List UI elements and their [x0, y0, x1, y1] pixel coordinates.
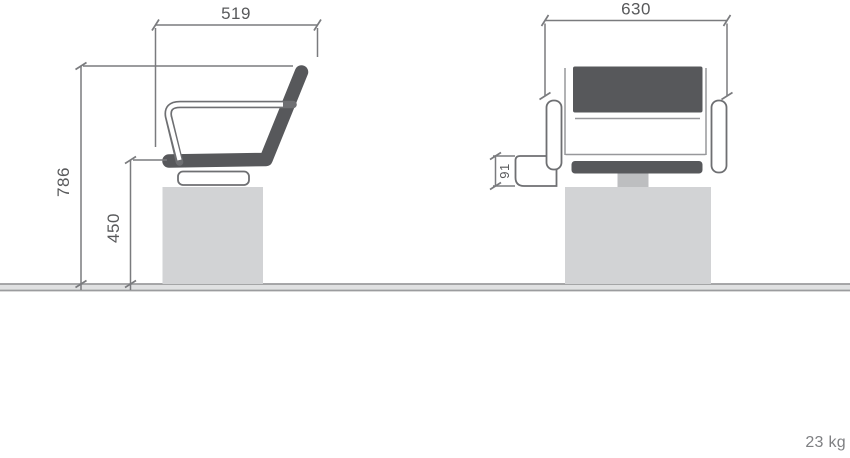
front-seat	[572, 161, 703, 174]
dim-91-label: 91	[497, 163, 512, 178]
dim-450: 450	[104, 157, 167, 291]
side-view	[163, 72, 302, 284]
side-base	[163, 187, 264, 284]
front-armrest-left	[547, 101, 562, 170]
side-seat-shell	[169, 72, 302, 161]
front-base	[565, 187, 711, 284]
front-armrest-right	[712, 101, 727, 173]
weight-label: 23 kg	[805, 434, 846, 451]
front-view	[516, 67, 727, 285]
dim-91: 91	[490, 153, 515, 190]
dim-450-label: 450	[104, 213, 123, 243]
front-backrest	[573, 67, 703, 113]
dim-519-label: 519	[221, 4, 251, 23]
side-seat-mount	[178, 172, 249, 186]
dim-786-label: 786	[54, 167, 73, 197]
dim-630-label: 630	[621, 0, 651, 19]
dimension-drawing: 519 786 450 630	[0, 0, 850, 458]
